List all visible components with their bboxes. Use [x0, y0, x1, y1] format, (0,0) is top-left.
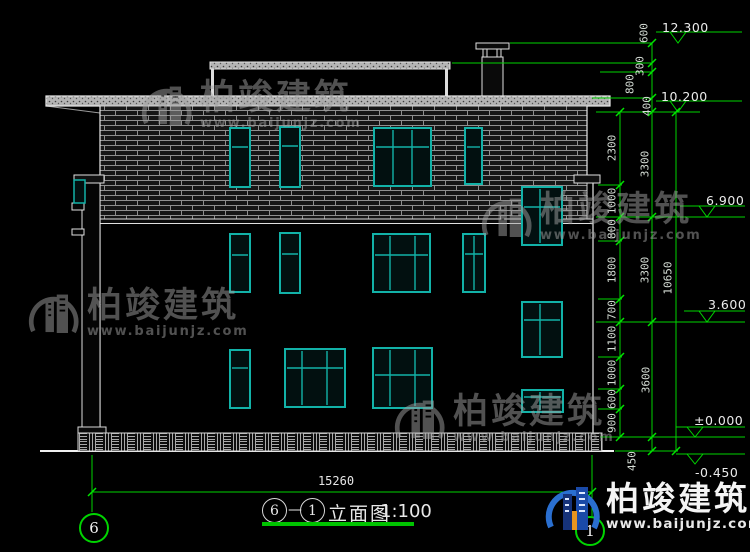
dim-inner-1100: 1100 — [606, 326, 619, 353]
dim-inner-600: 600 — [606, 389, 619, 409]
dim-inner-900: 900 — [606, 413, 619, 433]
drawing-scale: 1:100 — [380, 501, 432, 522]
right-ledge — [574, 175, 600, 183]
elevation-mark-12300: 12.300 — [662, 20, 709, 35]
belt-course — [82, 219, 593, 224]
dim-floor-450: 450 — [626, 451, 639, 471]
brick-band — [100, 106, 587, 220]
company-logo-name: 柏竣建筑 — [606, 481, 750, 516]
dim-top-300: 300 — [634, 56, 647, 76]
title-underline — [262, 522, 414, 526]
dim-inner-800: 800 — [606, 219, 619, 239]
dim-top-600: 600 — [638, 23, 651, 43]
dim-floor-3300b: 3300 — [639, 257, 652, 284]
chimney — [476, 43, 509, 97]
dim-overall-width: 15260 — [318, 474, 354, 488]
title-axis-end-bubble: 1 — [300, 498, 325, 523]
axis-bubble-6: 6 — [79, 513, 109, 543]
dim-floor-3300a: 3300 — [639, 151, 652, 178]
elevation-mark-3600: 3.600 — [708, 297, 746, 312]
dim-inner-1000a: 1000 — [606, 188, 619, 215]
dim-inner-1000b: 1000 — [606, 360, 619, 387]
dim-floor-3600: 3600 — [640, 367, 653, 394]
elevation-mark-10200: 10.200 — [661, 89, 708, 104]
dim-top-800: 800 — [624, 74, 637, 94]
dim-top-400: 400 — [641, 96, 654, 116]
eave-shadow-line — [46, 106, 100, 113]
dim-overall-height: 10650 — [662, 261, 675, 294]
elevation-mark-0000: ±0.000 — [694, 413, 743, 428]
company-logo-icon — [544, 481, 600, 545]
company-logo: 柏竣建筑 www.baijunjz.com — [544, 481, 750, 545]
title-axis-start-bubble: 6 — [262, 498, 287, 523]
roof-canopy — [210, 62, 450, 97]
left-pilaster — [72, 175, 104, 433]
plinth-band — [78, 433, 602, 451]
dim-inner-700: 700 — [606, 300, 619, 320]
parapet-band — [46, 96, 610, 106]
elevation-mark-6900: 6.900 — [706, 193, 744, 208]
dim-inner-2300: 2300 — [606, 135, 619, 162]
elevation-drawing-canvas: 12.300 10.200 6.900 3.600 ±0.000 -0.450 … — [0, 0, 750, 552]
elevation-mark-neg0450: -0.450 — [695, 465, 738, 480]
company-logo-url: www.baijunjz.com — [606, 516, 750, 532]
dim-inner-1800: 1800 — [606, 257, 619, 284]
